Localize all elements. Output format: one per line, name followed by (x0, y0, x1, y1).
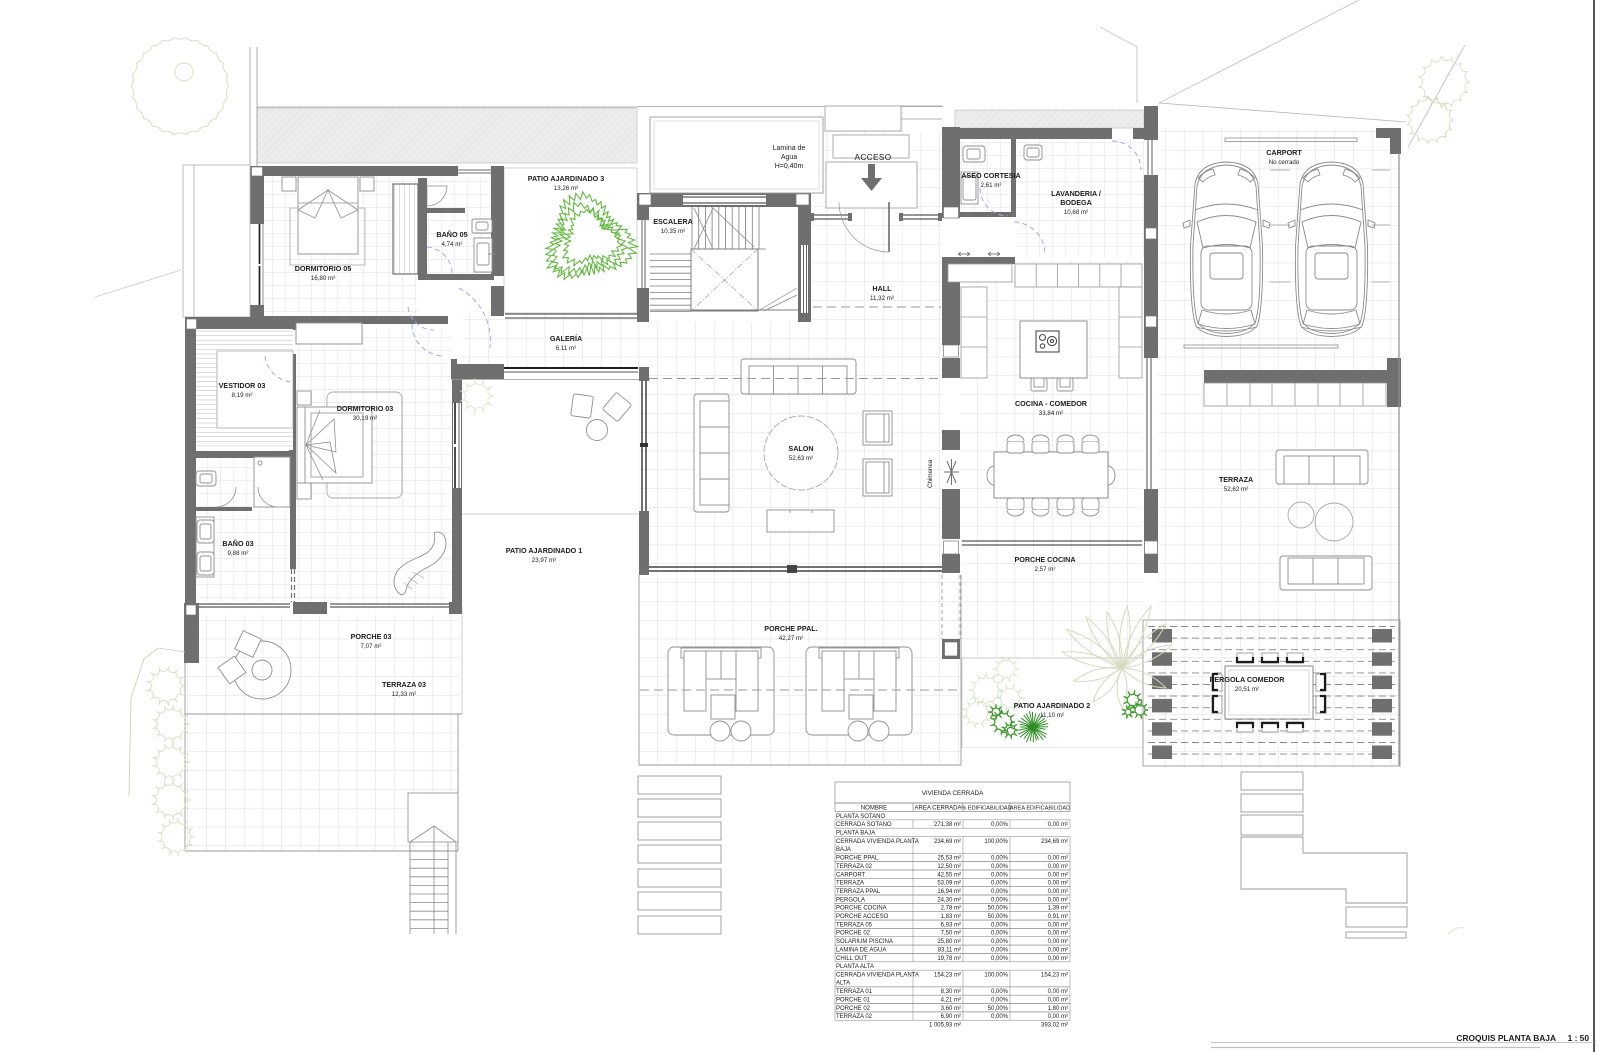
svg-text:7,50 m²: 7,50 m² (941, 931, 961, 937)
svg-text:0,00 m²: 0,00 m² (1048, 989, 1068, 995)
svg-text:LAMINA DE AGUA: LAMINA DE AGUA (836, 947, 886, 953)
svg-text:3,60 m²: 3,60 m² (941, 1006, 961, 1012)
svg-text:PLANTA ALTA: PLANTA ALTA (836, 964, 874, 970)
svg-text:PERGOLA: PERGOLA (836, 897, 865, 903)
svg-text:Chimenea: Chimenea (927, 459, 934, 488)
svg-text:PORCHE 02: PORCHE 02 (836, 1006, 871, 1012)
svg-text:0,00%: 0,00% (991, 989, 1009, 995)
svg-text:ACCESO: ACCESO (855, 153, 892, 162)
svg-text:1,83 m²: 1,83 m² (941, 914, 961, 920)
svg-text:2,78 m²: 2,78 m² (941, 906, 961, 912)
svg-text:AREA CERRADA: AREA CERRADA (914, 806, 961, 812)
svg-text:CERRADA SOTANO: CERRADA SOTANO (836, 822, 892, 828)
svg-text:23,97 m²: 23,97 m² (532, 557, 556, 564)
svg-text:VESTIDOR 03: VESTIDOR 03 (219, 381, 266, 390)
svg-text:0,00 m²: 0,00 m² (1048, 931, 1068, 937)
svg-text:TERRAZA: TERRAZA (1219, 475, 1253, 484)
svg-text:7,07 m²: 7,07 m² (361, 643, 382, 650)
svg-text:DORMITORIO 05: DORMITORIO 05 (295, 264, 352, 273)
svg-text:0,00%: 0,00% (991, 956, 1009, 962)
svg-text:83,11 m²: 83,11 m² (938, 947, 961, 953)
svg-text:0,00%: 0,00% (991, 889, 1009, 895)
svg-text:0,00%: 0,00% (991, 1014, 1009, 1020)
svg-text:LAVANDERIA /: LAVANDERIA / (1051, 189, 1101, 198)
svg-text:42,55 m²: 42,55 m² (937, 872, 961, 878)
svg-text:Agua: Agua (781, 154, 797, 161)
svg-text:CERRADA VIVIENDA PLANTA: CERRADA VIVIENDA PLANTA (836, 973, 919, 979)
svg-text:0,00%: 0,00% (991, 939, 1009, 945)
svg-text:0,00 m²: 0,00 m² (1048, 947, 1068, 953)
svg-text:13,26 m²: 13,26 m² (554, 185, 578, 192)
svg-text:0,00%: 0,00% (991, 856, 1009, 862)
svg-text:PORCHE PPAL.: PORCHE PPAL. (764, 624, 817, 633)
svg-text:53,09 m²: 53,09 m² (937, 881, 961, 887)
svg-text:0,00 m²: 0,00 m² (1048, 864, 1068, 870)
svg-text:CARPORT: CARPORT (836, 872, 866, 878)
svg-text:234,69 m²: 234,69 m² (934, 839, 961, 845)
svg-text:100,00%: 100,00% (984, 839, 1008, 845)
svg-text:PATIO AJARDINADO 3: PATIO AJARDINADO 3 (528, 174, 605, 183)
svg-text:1 005,93 m²: 1 005,93 m² (929, 1023, 961, 1029)
svg-text:1,39 m²: 1,39 m² (1048, 906, 1068, 912)
svg-text:TERRAZA: TERRAZA (836, 881, 864, 887)
svg-text:AREA EDIFICABILIDAD: AREA EDIFICABILIDAD (1010, 806, 1070, 812)
svg-text:ALTA: ALTA (836, 981, 850, 987)
svg-text:11,10 m²: 11,10 m² (1040, 712, 1064, 719)
svg-text:BAÑO 03: BAÑO 03 (222, 539, 253, 548)
svg-text:4,74 m²: 4,74 m² (442, 241, 463, 248)
svg-text:8,19 m²: 8,19 m² (232, 392, 253, 399)
svg-text:0,00%: 0,00% (991, 998, 1009, 1004)
svg-text:% EDIFICABILIDAD: % EDIFICABILIDAD (961, 806, 1011, 812)
svg-text:PORCHE PPAL.: PORCHE PPAL. (836, 856, 880, 862)
svg-text:BAJA: BAJA (836, 847, 851, 853)
svg-text:6,90 m²: 6,90 m² (941, 1014, 961, 1020)
svg-text:0,00%: 0,00% (991, 897, 1009, 903)
svg-text:ESCALERA: ESCALERA (653, 217, 693, 226)
svg-text:Lamina de: Lamina de (773, 145, 806, 152)
svg-text:10,68 m²: 10,68 m² (1064, 209, 1088, 216)
svg-text:0,00 m²: 0,00 m² (1048, 856, 1068, 862)
svg-text:TERRAZA 02: TERRAZA 02 (836, 1014, 873, 1020)
svg-text:12,33 m²: 12,33 m² (392, 691, 416, 698)
svg-text:50,00%: 50,00% (988, 914, 1009, 920)
svg-text:16,94 m²: 16,94 m² (937, 889, 961, 895)
svg-text:0,91 m²: 0,91 m² (1048, 914, 1068, 920)
svg-text:6,93 m²: 6,93 m² (941, 922, 961, 928)
svg-text:NOMBRE: NOMBRE (861, 806, 887, 812)
svg-text:PORCHE COCINA: PORCHE COCINA (836, 906, 887, 912)
svg-text:50,00%: 50,00% (988, 906, 1009, 912)
svg-text:0,00%: 0,00% (991, 931, 1009, 937)
svg-text:BODEGA: BODEGA (1060, 198, 1092, 207)
svg-text:H=0,40m: H=0,40m (775, 163, 804, 170)
svg-text:PATIO AJARDINADO 2: PATIO AJARDINADO 2 (1014, 701, 1091, 710)
svg-text:234,69 m²: 234,69 m² (1041, 839, 1068, 845)
svg-text:52,62 m²: 52,62 m² (1224, 486, 1248, 493)
svg-text:0,00 m²: 0,00 m² (1048, 822, 1068, 828)
svg-text:24,30 m²: 24,30 m² (937, 897, 961, 903)
svg-text:4,21 m²: 4,21 m² (941, 998, 961, 1004)
svg-text:SOLARIUM PISCINA: SOLARIUM PISCINA (836, 939, 893, 945)
svg-text:TERRAZA 05: TERRAZA 05 (836, 922, 873, 928)
svg-text:12,50 m²: 12,50 m² (937, 864, 961, 870)
svg-text:100,00%: 100,00% (984, 973, 1008, 979)
svg-text:PORCHE ACCESO: PORCHE ACCESO (836, 914, 889, 920)
svg-text:42,27 m²: 42,27 m² (779, 635, 803, 642)
svg-text:PORCHE 03: PORCHE 03 (351, 632, 392, 641)
svg-text:271,38 m²: 271,38 m² (934, 822, 961, 828)
svg-text:1 : 50: 1 : 50 (1568, 1033, 1590, 1043)
svg-text:PATIO AJARDINADO 1: PATIO AJARDINADO 1 (506, 546, 583, 555)
svg-text:PERGOLA COMEDOR: PERGOLA COMEDOR (1210, 675, 1286, 684)
svg-text:0,00 m²: 0,00 m² (1048, 1014, 1068, 1020)
svg-text:PLANTA SOTANO: PLANTA SOTANO (836, 814, 885, 820)
svg-text:GALERÍA: GALERÍA (550, 334, 582, 343)
svg-text:20,51 m²: 20,51 m² (1235, 686, 1259, 693)
svg-text:TERRAZA PPAL: TERRAZA PPAL (836, 889, 881, 895)
svg-text:30,19 m²: 30,19 m² (353, 415, 377, 422)
svg-text:PORCHE COCINA: PORCHE COCINA (1014, 555, 1075, 564)
svg-text:0,00 m²: 0,00 m² (1048, 922, 1068, 928)
svg-text:PLANTA BAJA: PLANTA BAJA (836, 831, 875, 837)
svg-text:BAÑO 05: BAÑO 05 (436, 230, 467, 239)
svg-text:CERRADA VIVIENDA PLANTA: CERRADA VIVIENDA PLANTA (836, 839, 919, 845)
svg-text:0,00%: 0,00% (991, 872, 1009, 878)
svg-text:0,00 m²: 0,00 m² (1048, 881, 1068, 887)
svg-text:0,00 m²: 0,00 m² (1048, 998, 1068, 1004)
svg-text:CHILL OUT: CHILL OUT (836, 956, 867, 962)
svg-text:154,23 m²: 154,23 m² (934, 973, 961, 979)
svg-text:0,00%: 0,00% (991, 864, 1009, 870)
svg-text:0,00%: 0,00% (991, 822, 1009, 828)
svg-text:PORCHE 01: PORCHE 01 (836, 998, 871, 1004)
svg-text:DORMITORIO 03: DORMITORIO 03 (337, 404, 394, 413)
svg-text:11,32 m²: 11,32 m² (870, 295, 894, 302)
svg-text:0,00 m²: 0,00 m² (1048, 897, 1068, 903)
svg-text:TERRAZA 02: TERRAZA 02 (836, 864, 873, 870)
svg-text:0,00%: 0,00% (991, 881, 1009, 887)
svg-text:ASEO CORTESIA: ASEO CORTESIA (961, 171, 1021, 180)
svg-text:0,00%: 0,00% (991, 922, 1009, 928)
svg-text:No cerrado: No cerrado (1269, 159, 1300, 166)
svg-text:COCINA - COMEDOR: COCINA - COMEDOR (1015, 399, 1088, 408)
svg-text:0,00 m²: 0,00 m² (1048, 956, 1068, 962)
svg-text:VIVIENDA CERRADA: VIVIENDA CERRADA (922, 790, 984, 797)
svg-text:19,78 m²: 19,78 m² (937, 956, 961, 962)
svg-text:154,23 m²: 154,23 m² (1041, 973, 1068, 979)
svg-text:HALL: HALL (872, 284, 892, 293)
svg-text:SALON: SALON (788, 444, 813, 453)
svg-text:0,00 m²: 0,00 m² (1048, 939, 1068, 945)
svg-text:0,00 m²: 0,00 m² (1048, 889, 1068, 895)
svg-text:8,30 m²: 8,30 m² (941, 989, 961, 995)
svg-text:6,11 m²: 6,11 m² (556, 345, 577, 352)
svg-text:25,53 m²: 25,53 m² (937, 856, 961, 862)
svg-text:CROQUIS PLANTA BAJA: CROQUIS PLANTA BAJA (1456, 1033, 1556, 1043)
svg-text:1,80 m²: 1,80 m² (1048, 1006, 1068, 1012)
svg-text:TERRAZA 01: TERRAZA 01 (836, 989, 873, 995)
svg-text:0,00 m²: 0,00 m² (1048, 872, 1068, 878)
svg-text:9,88 m²: 9,88 m² (228, 550, 249, 557)
svg-text:2,57 m²: 2,57 m² (1035, 566, 1056, 573)
svg-text:0,00%: 0,00% (991, 947, 1009, 953)
svg-text:PORCHE 02: PORCHE 02 (836, 931, 871, 937)
svg-text:25,80 m²: 25,80 m² (937, 939, 961, 945)
svg-text:52,63 m²: 52,63 m² (789, 455, 813, 462)
svg-text:TERRAZA 03: TERRAZA 03 (382, 680, 426, 689)
svg-text:CARPORT: CARPORT (1266, 148, 1302, 157)
svg-text:2,61 m²: 2,61 m² (981, 182, 1002, 189)
svg-text:393,02 m²: 393,02 m² (1041, 1023, 1068, 1029)
svg-text:50,00%: 50,00% (988, 1006, 1009, 1012)
svg-text:10,35 m²: 10,35 m² (661, 228, 685, 235)
svg-text:16,80 m²: 16,80 m² (311, 275, 335, 282)
svg-text:33,84 m²: 33,84 m² (1039, 410, 1063, 417)
